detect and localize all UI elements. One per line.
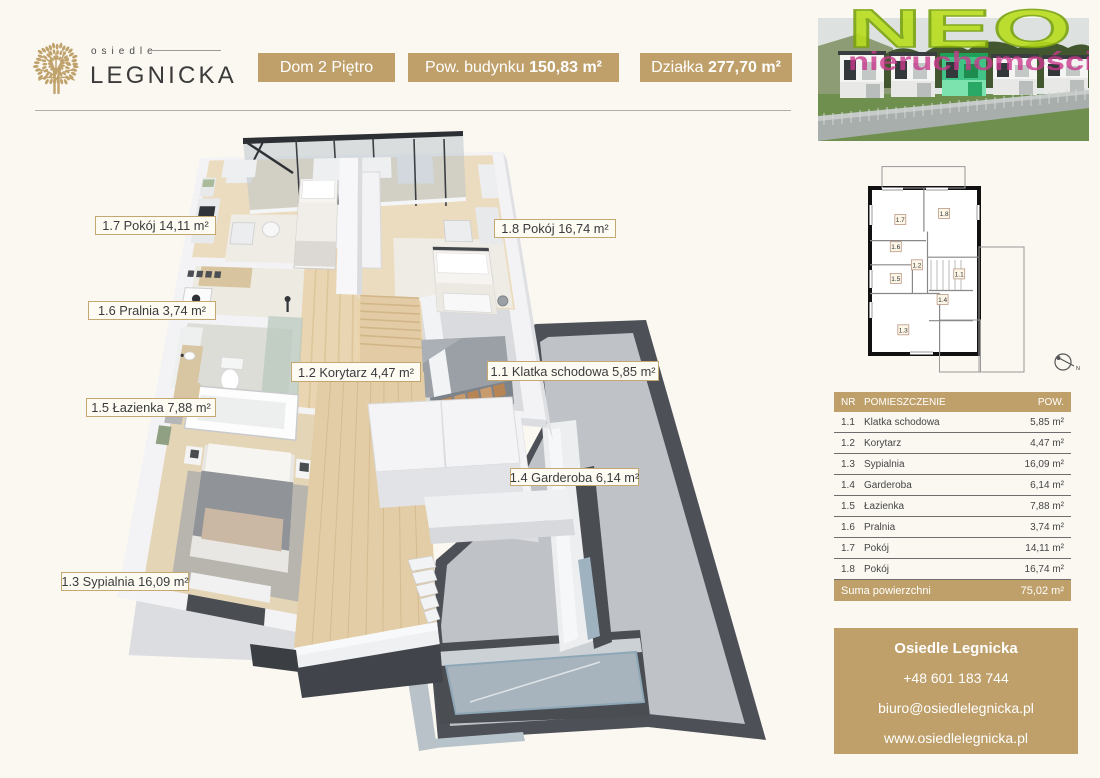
svg-text:N: N	[1076, 366, 1080, 372]
svg-text:1.8: 1.8	[940, 211, 949, 218]
svg-text:1.2: 1.2	[912, 262, 921, 269]
svg-text:1.7: 1.7	[896, 217, 905, 224]
svg-text:nieruchomości: nieruchomości	[848, 47, 1089, 76]
svg-text:1.3: 1.3	[899, 327, 908, 334]
svg-text:1.4: 1.4	[938, 297, 947, 304]
svg-text:1.5: 1.5	[891, 276, 900, 283]
svg-text:1.1: 1.1	[955, 271, 964, 278]
svg-text:1.6: 1.6	[891, 244, 900, 251]
